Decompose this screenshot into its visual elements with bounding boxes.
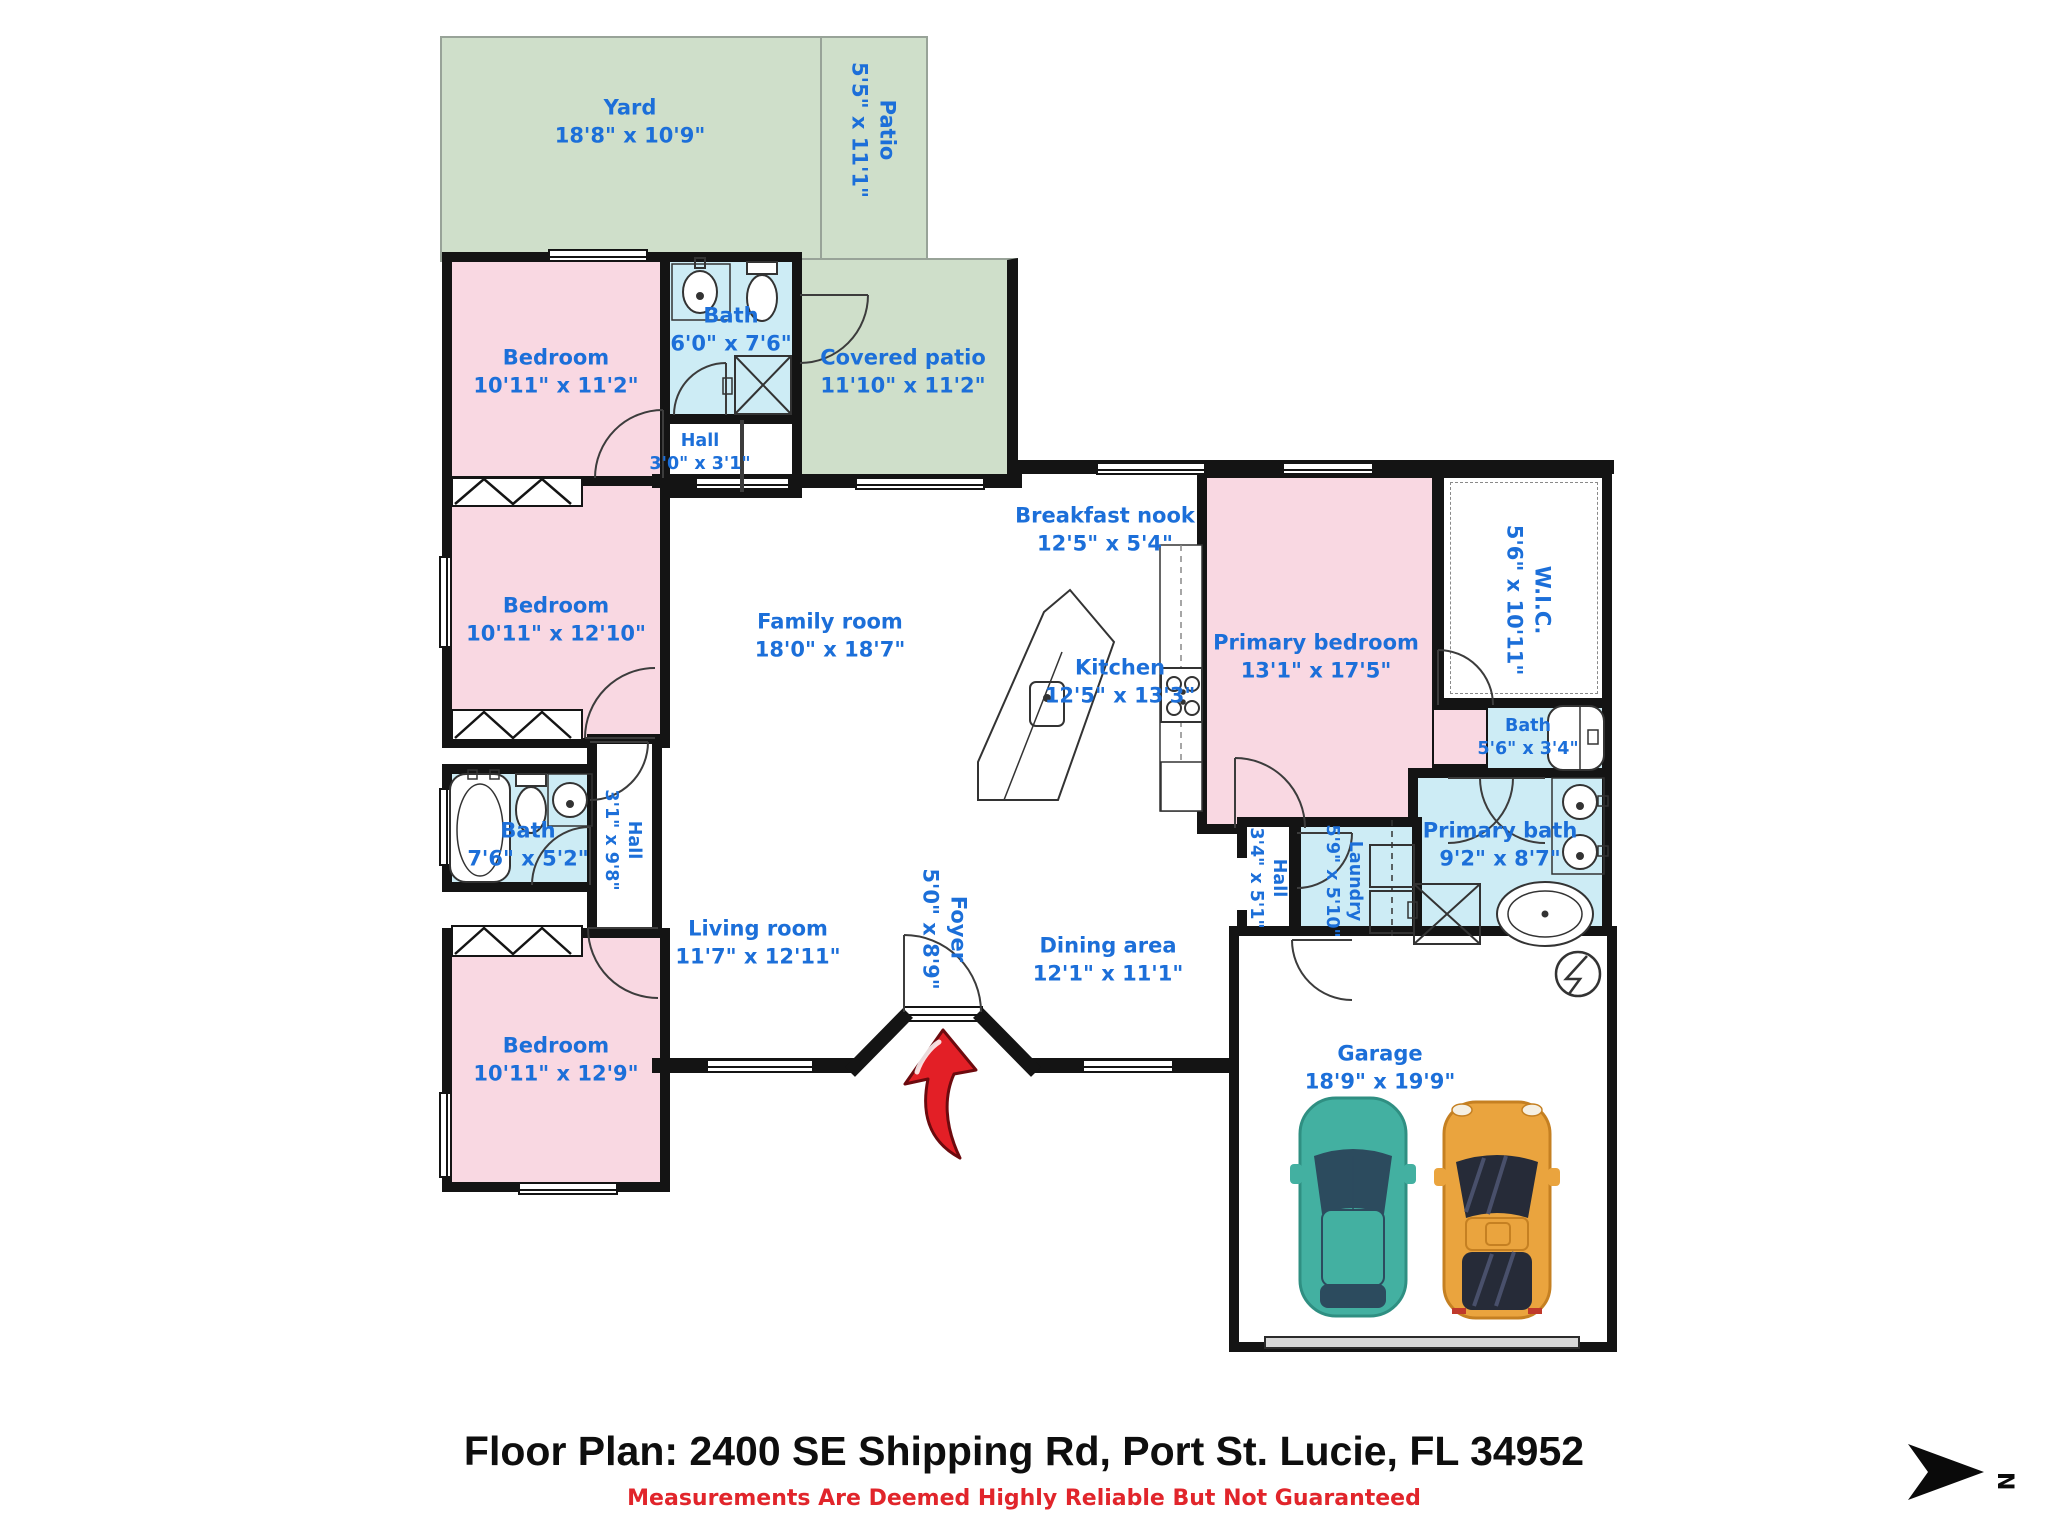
label-hall-small: Hall3'0" x 3'1" — [649, 430, 750, 476]
label-family-room: Family room18'0" x 18'7" — [755, 608, 906, 663]
label-kitchen: Kitchen12'5" x 13'3" — [1045, 654, 1196, 709]
label-patio: Patio5'5" x 11'1" — [845, 62, 900, 198]
floor-plan-canvas: N Yard18'8" x 10'9" Patio5'5" x 11'1" Co… — [0, 0, 2048, 1536]
label-living-room: Living room11'7" x 12'11" — [675, 915, 840, 970]
label-hall-left: Hall3'1" x 9'8" — [599, 789, 645, 890]
label-primary-bedroom: Primary bedroom13'1" x 17'5" — [1213, 629, 1419, 684]
label-bedroom-bottom: Bedroom10'11" x 12'9" — [473, 1032, 638, 1087]
label-covered-patio: Covered patio11'10" x 11'2" — [820, 344, 986, 399]
disclaimer-text: Measurements Are Deemed Highly Reliable … — [0, 1486, 2048, 1511]
car-orange — [1434, 1102, 1560, 1318]
laundry-appliances — [1370, 820, 1414, 938]
plan-symbols: N — [0, 0, 2048, 1536]
page-title: Floor Plan: 2400 SE Shipping Rd, Port St… — [0, 1428, 2048, 1475]
entry-arrow-icon — [905, 1030, 976, 1158]
label-hall-right: Hall3'4" x 5'1" — [1244, 827, 1290, 928]
label-breakfast-nook: Breakfast nook12'5" x 5'4" — [1015, 502, 1195, 557]
label-foyer: Foyer5'0" x 8'9" — [916, 868, 971, 989]
label-garage: Garage18'9" x 19'9" — [1305, 1040, 1456, 1095]
label-bath-left: Bath7'6" x 5'2" — [467, 817, 588, 872]
label-primary-bath: Primary bath9'2" x 8'7" — [1423, 817, 1578, 872]
closet-bifold-doors — [452, 478, 582, 956]
label-yard: Yard18'8" x 10'9" — [555, 94, 706, 149]
label-dining-area: Dining area12'1" x 11'1" — [1033, 932, 1184, 987]
water-heater-icon — [1556, 952, 1600, 996]
label-bedroom-mid: Bedroom10'11" x 12'10" — [466, 592, 646, 647]
label-bedroom-top: Bedroom10'11" x 11'2" — [473, 344, 638, 399]
label-bath-top: Bath6'0" x 7'6" — [670, 302, 791, 357]
label-bath-right: Bath5'6" x 3'4" — [1477, 715, 1578, 761]
label-wic: W.I.C.5'6" x 10'11" — [1500, 525, 1555, 676]
label-laundry: Laundry5'9" x 5'10" — [1320, 824, 1366, 937]
car-teal — [1290, 1098, 1416, 1316]
